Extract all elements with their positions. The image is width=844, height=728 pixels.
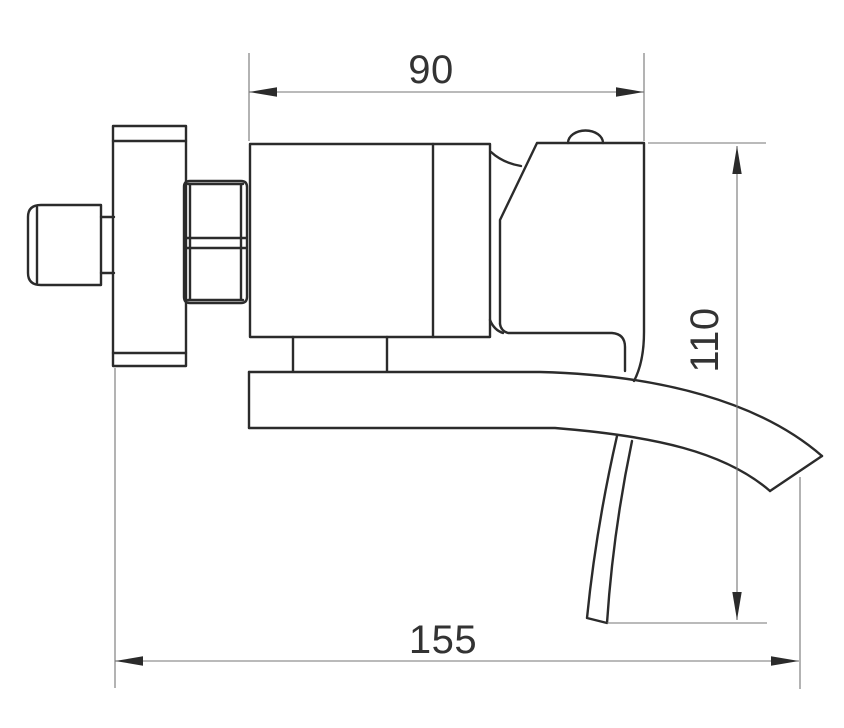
dimension-top-width: 90: [249, 48, 644, 141]
faucet-dimension-drawing: 90 110 155: [0, 0, 844, 728]
spout-top-curve: [249, 372, 822, 456]
wall-plate-cap-lines: [113, 141, 186, 353]
dimension-bottom-width: 155: [115, 368, 800, 689]
mounting-tab: [293, 337, 387, 371]
spout-tip-face: [770, 456, 822, 491]
spout-housing-underside: [500, 324, 625, 371]
mounting-nut-mid-band: [185, 238, 246, 248]
arrowhead-left: [249, 87, 277, 96]
dimension-label-110: 110: [683, 307, 727, 372]
dimension-label-90: 90: [408, 48, 454, 92]
wall-plate: [113, 126, 186, 366]
technical-drawing-canvas: 90 110 155: [0, 0, 844, 728]
dimension-label-155: 155: [409, 618, 477, 662]
spout-down-tube: [587, 436, 632, 623]
arrowhead-down: [732, 592, 741, 620]
mounting-nut: [184, 181, 247, 303]
mounting-nut-inner-lines: [188, 184, 243, 300]
arrowhead-right: [771, 656, 799, 665]
handle-knob: [28, 205, 101, 285]
spout-housing: [500, 143, 644, 381]
arrowhead-left: [115, 656, 143, 665]
arrowhead-up: [732, 146, 741, 174]
arrowhead-right: [616, 87, 644, 96]
fillet-top: [491, 152, 521, 166]
spout-bottom-curve: [249, 428, 770, 491]
faucet-outline: [28, 126, 822, 623]
valve-body: [250, 144, 490, 337]
diverter-dome: [568, 131, 603, 144]
dimension-right-height: 110: [607, 143, 767, 623]
